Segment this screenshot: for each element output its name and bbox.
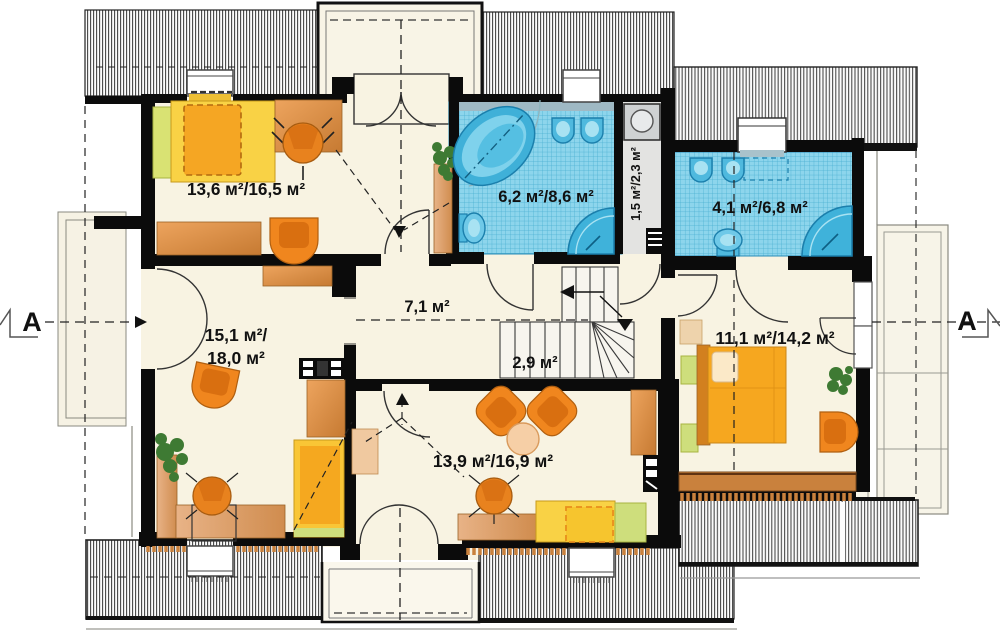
svg-text:1,5 м²/2,3 м²: 1,5 м²/2,3 м² [628, 147, 643, 221]
svg-text:A: A [957, 306, 977, 336]
svg-text:2,9 м²: 2,9 м² [512, 354, 558, 372]
svg-text:7,1 м²: 7,1 м² [404, 298, 450, 316]
svg-text:11,1 м²/14,2 м²: 11,1 м²/14,2 м² [715, 328, 834, 348]
svg-text:6,2 м²/8,6 м²: 6,2 м²/8,6 м² [498, 187, 594, 206]
svg-text:A: A [22, 307, 42, 337]
svg-text:15,1 м²/: 15,1 м²/ [205, 325, 268, 345]
svg-text:4,1 м²/6,8 м²: 4,1 м²/6,8 м² [712, 198, 808, 217]
svg-text:13,9 м²/16,9 м²: 13,9 м²/16,9 м² [433, 451, 553, 471]
svg-text:13,6 м²/16,5 м²: 13,6 м²/16,5 м² [187, 179, 305, 199]
svg-text:18,0 м²: 18,0 м² [207, 348, 265, 368]
